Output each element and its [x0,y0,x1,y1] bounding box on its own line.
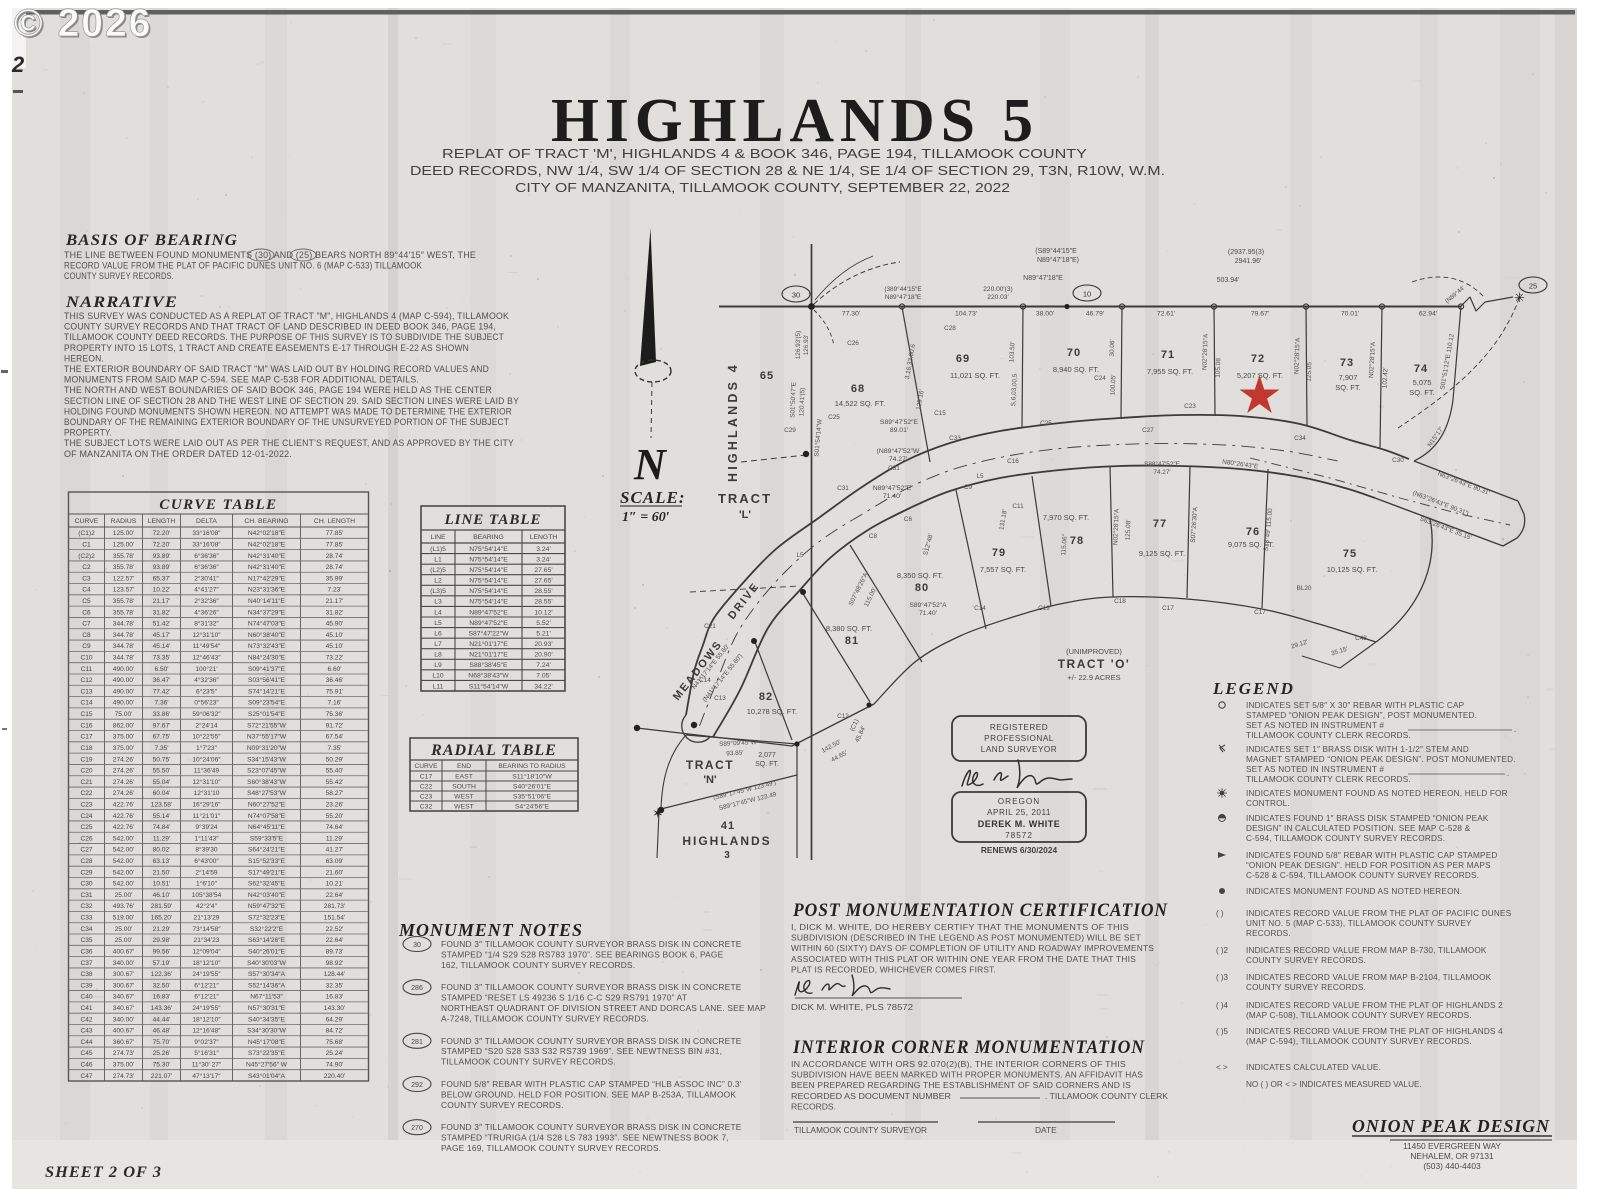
svg-text:30.06′: 30.06′ [1109,338,1117,356]
svg-text:S09°23′54″E: S09°23′54″E [248,699,286,707]
svg-text:69: 69 [956,353,970,365]
svg-text:82: 82 [759,691,773,703]
svg-text:490.00': 490.00' [113,688,134,695]
svg-text:36.46': 36.46' [326,677,344,684]
svg-text:OF MANZANITA ON THE ORDER DATE: OF MANZANITA ON THE ORDER DATED 12-01-20… [64,449,292,459]
svg-text:S4°24′56″E: S4°24′56″E [515,803,550,811]
svg-text:C26: C26 [80,835,92,842]
svg-text:SET AS NOTED IN INSTRUMENT #: SET AS NOTED IN INSTRUMENT # [1246,721,1384,730]
svg-text:7,907: 7,907 [1339,373,1358,382]
svg-text:N60°38′40″E: N60°38′40″E [248,631,286,639]
svg-text:6°12′21″: 6°12′21″ [194,993,219,1001]
svg-text:62.94': 62.94' [1419,311,1437,318]
svg-text:16°29′16″: 16°29′16″ [192,800,221,808]
svg-text:10: 10 [1083,290,1091,299]
svg-text:16.83': 16.83' [326,994,344,1001]
svg-text:DEED RECORDS, NW 1/4, SW 1/4 O: DEED RECORDS, NW 1/4, SW 1/4 OF SECTION … [410,164,1165,178]
svg-text:S89°47′52″E: S89°47′52″E [880,418,919,426]
svg-text:55.50': 55.50' [153,768,171,775]
svg-text:.: . [1507,769,1509,778]
svg-text:MONUMENT NOTES: MONUMENT NOTES [398,920,583,940]
svg-text:THE LINE BETWEEN FOUND MONUMEN: THE LINE BETWEEN FOUND MONUMENTS (30) AN… [64,250,476,260]
svg-text:28.74': 28.74' [326,564,344,571]
svg-text:21.17': 21.17' [326,598,344,605]
svg-text:'L': 'L' [739,509,751,521]
svg-text:46.48': 46.48' [153,1028,171,1035]
svg-text:C17: C17 [80,734,92,741]
svg-text:70: 70 [1067,347,1081,359]
svg-text:(L3)5: (L3)5 [430,588,446,595]
svg-text:1°11′43″: 1°11′43″ [194,834,219,842]
svg-text:STAMPED “1/4 S29 S28 RS783 197: STAMPED “1/4 S29 S28 RS783 1970”. SEE BE… [441,949,724,959]
svg-text:2°32′36″: 2°32′36″ [194,597,219,605]
svg-text:L7: L7 [434,641,442,648]
svg-text:73.22': 73.22' [326,655,344,662]
svg-text:71.40′: 71.40′ [883,493,902,500]
svg-text:INTERIOR CORNER MONUMENTATION: INTERIOR CORNER MONUMENTATION [792,1037,1145,1058]
svg-text:542.00': 542.00' [113,869,134,876]
svg-text:S52°14′36″A: S52°14′36″A [248,981,286,989]
svg-text:BL20: BL20 [1297,585,1312,592]
svg-text:N02°28′15″A: N02°28′15″A [1111,508,1120,545]
svg-text:(S89°44′15″E: (S89°44′15″E [1035,247,1077,255]
svg-text:0°56′23″: 0°56′23″ [194,699,219,707]
svg-text:71.40′: 71.40′ [919,610,938,617]
svg-text:ASSOCIATED WITH THIS PLAT OR W: ASSOCIATED WITH THIS PLAT OR WITHIN ONE … [791,954,1136,964]
svg-text:18°12′10″: 18°12′10″ [192,959,221,967]
svg-text:21°34′23: 21°34′23 [194,936,220,944]
svg-text:32.35': 32.35' [326,982,344,989]
svg-text:5.21': 5.21' [536,630,551,637]
svg-text:73: 73 [1340,357,1354,369]
svg-text:503.94′: 503.94′ [1217,277,1240,284]
svg-text:68: 68 [851,383,865,395]
svg-text:490.00': 490.00' [113,666,134,673]
svg-text:125.05: 125.05 [1306,362,1314,382]
svg-text:NO ( ) OR < > INDICATES MEASUR: NO ( ) OR < > INDICATES MEASURED VALUE. [1246,1080,1422,1089]
svg-text:C16: C16 [80,722,92,729]
svg-text:INDICATES CALCULATED VALUE.: INDICATES CALCULATED VALUE. [1246,1063,1381,1072]
svg-text:S34°30′30″W: S34°30′30″W [247,1027,287,1035]
svg-text:6°43′00″: 6°43′00″ [194,857,219,865]
svg-text:C26: C26 [847,340,859,347]
svg-text:C38: C38 [80,971,92,978]
svg-text:FOUND 3″ TILLAMOOK COUNTY SURV: FOUND 3″ TILLAMOOK COUNTY SURVEYOR BRASS… [441,982,742,992]
svg-text:C27: C27 [80,847,92,854]
svg-text:123.58': 123.58' [151,801,172,808]
svg-text:105°38′54: 105°38′54 [192,891,222,899]
svg-text:INDICATES RECORD VALUE FROM MA: INDICATES RECORD VALUE FROM MAP B-730, T… [1246,946,1487,955]
svg-text:400.67': 400.67' [113,1028,134,1035]
svg-text:46.79': 46.79' [1086,311,1104,318]
svg-text:SCALE:: SCALE: [620,488,686,507]
svg-text:103.50′: 103.50′ [1008,341,1016,363]
svg-text:4°36′26″: 4°36′26″ [194,608,219,616]
svg-text:46.10': 46.10' [153,892,171,899]
svg-text:THE SUBJECT LOTS WERE LAID OUT: THE SUBJECT LOTS WERE LAID OUT AS PER TH… [64,438,514,448]
svg-text:STAMPED “S20 S28 S33 S32 RS739: STAMPED “S20 S28 S33 S32 RS739 1969”. SE… [441,1046,722,1056]
svg-text:422.76': 422.76' [113,824,134,831]
svg-text:542.00': 542.00' [113,847,134,854]
svg-text:S40°26′01″E: S40°26′01″E [513,783,552,791]
svg-text:END: END [457,763,471,770]
svg-text:22.64': 22.64' [326,937,344,944]
svg-text:C21: C21 [80,779,92,786]
svg-text:542.00': 542.00' [113,835,134,842]
svg-text:3.24': 3.24' [536,546,551,553]
svg-text:32.50': 32.50' [153,982,171,989]
svg-text:34.22': 34.22' [534,683,552,690]
svg-text:INDICATES RECORD VALUE FROM TH: INDICATES RECORD VALUE FROM THE PLAT OF … [1246,1001,1503,1010]
svg-text:25.00': 25.00' [115,892,133,899]
svg-text:C35: C35 [80,937,92,944]
svg-text:TILLAMOOK COUNTY CLERK RECORDS: TILLAMOOK COUNTY CLERK RECORDS. [1246,775,1411,784]
svg-text:C1: C1 [82,541,91,548]
svg-text:PAGE 169, TILLAMOOK COUNTY SUR: PAGE 169, TILLAMOOK COUNTY SURVEY RECORD… [441,1143,661,1153]
svg-text:47°13′17″: 47°13′17″ [192,1072,221,1080]
svg-text:C12: C12 [80,677,92,684]
svg-text:UNIT NO. 5 (MAP C-533), TILLAM: UNIT NO. 5 (MAP C-533), TILLAMOOK COUNTY… [1246,919,1472,928]
svg-text:30: 30 [792,291,800,300]
svg-text:S25°01′54″E: S25°01′54″E [248,710,286,718]
svg-text:N42°02′18″E: N42°02′18″E [248,540,286,548]
svg-text:C-594, TILLAMOOK COUNTY SURVEY: C-594, TILLAMOOK COUNTY SURVEY RECORDS. [1246,834,1445,843]
svg-text:N75°54′14″E: N75°54′14″E [469,555,508,563]
svg-text:7.23': 7.23' [327,587,341,594]
svg-text:C15: C15 [80,711,92,718]
svg-text:L5: L5 [976,473,984,480]
svg-text:10.22': 10.22' [153,587,171,594]
svg-text:DELTA: DELTA [196,518,217,525]
svg-text:FOUND 5/8″ REBAR WITH PLASTIC: FOUND 5/8″ REBAR WITH PLASTIC CAP STAMPE… [441,1079,742,1089]
svg-text:FOUND 3″ TILLAMOOK COUNTY SURV: FOUND 3″ TILLAMOOK COUNTY SURVEYOR BRASS… [441,1122,742,1132]
svg-text:SQ. FT.: SQ. FT. [1409,388,1434,397]
svg-text:12°31′10″: 12°31′10″ [192,631,221,639]
svg-text:422.76': 422.76' [113,801,134,808]
svg-text:COUNTY SURVEY RECORDS.: COUNTY SURVEY RECORDS. [441,1100,564,1110]
svg-text:25.24': 25.24' [326,1050,344,1057]
svg-text:33°16′08″: 33°16′08″ [192,540,221,548]
svg-text:162, TILLAMOOK COUNTY SURVEY R: 162, TILLAMOOK COUNTY SURVEY RECORDS. [441,960,635,970]
svg-text:LENGTH: LENGTH [530,534,558,541]
svg-text:C24: C24 [1094,375,1106,382]
svg-text:DATE: DATE [1035,1125,1057,1135]
svg-text:INDICATES MONUMENT FOUND AS NO: INDICATES MONUMENT FOUND AS NOTED HEREON… [1246,789,1508,798]
svg-text:L8: L8 [434,652,442,659]
svg-text:S59°33′5″E: S59°33′5″E [250,834,284,842]
svg-text:C24: C24 [80,813,92,820]
svg-text:31.82': 31.82' [153,609,171,616]
svg-text:INDICATES MONUMENT FOUND AS NO: INDICATES MONUMENT FOUND AS NOTED HEREON… [1246,887,1462,896]
svg-text:C19: C19 [80,756,92,763]
svg-text:N40°14′11″E: N40°14′11″E [248,597,285,605]
svg-text:2941.96′: 2941.96′ [1235,258,1262,265]
svg-text:N17°42′29″E: N17°42′29″E [248,574,286,582]
svg-text:S74°14′21″E: S74°14′21″E [248,687,286,695]
svg-text:N60°27′52″E: N60°27′52″E [248,800,286,808]
svg-text:270: 270 [411,1125,423,1132]
svg-text:274.26': 274.26' [113,756,134,763]
svg-text:6.60': 6.60' [327,666,341,673]
svg-text:(N89°47′52″W: (N89°47′52″W [877,447,920,455]
svg-text:143.36': 143.36' [151,1005,172,1012]
svg-text:11450 EVERGREEN WAY: 11450 EVERGREEN WAY [1403,1141,1501,1151]
svg-text:✶: ✶ [652,805,664,821]
svg-text:C10: C10 [80,655,92,662]
svg-text:36.47': 36.47' [153,677,171,684]
svg-text:C23: C23 [420,794,433,801]
svg-text:N21°01′17″E: N21°01′17″E [469,640,508,648]
svg-text:COUNTY SURVEY RECORDS.: COUNTY SURVEY RECORDS. [64,271,174,281]
svg-text:C32: C32 [420,804,433,811]
svg-text:300.67': 300.67' [113,971,134,978]
svg-text:CH. BEARING: CH. BEARING [244,518,288,525]
svg-text:C5: C5 [82,598,91,605]
svg-text:20.90': 20.90' [534,652,552,659]
svg-text:97.67': 97.67' [153,722,171,729]
svg-text:( )3: ( )3 [1216,973,1229,982]
svg-text:74.90': 74.90' [326,1062,344,1069]
svg-text:N37°55′17″W: N37°55′17″W [247,733,287,741]
svg-text:59°06′32″: 59°06′32″ [192,710,221,718]
svg-text:SUBDIVISION (DESCRIBED IN THE: SUBDIVISION (DESCRIBED IN THE LEGEND AS … [791,933,1142,943]
svg-text:2: 2 [11,52,25,77]
svg-text:93.85′: 93.85′ [726,750,744,758]
svg-text:74: 74 [1414,363,1428,375]
svg-text:ONION PEAK DESIGN: ONION PEAK DESIGN [1352,1116,1550,1136]
svg-text:281.59': 281.59' [151,903,172,910]
svg-text:N89°47′18″E): N89°47′18″E) [1037,256,1079,264]
svg-text:N89°47′52″E: N89°47′52″E [873,484,912,492]
svg-text:28.55': 28.55' [534,588,552,595]
svg-text:11°21′01″: 11°21′01″ [193,812,221,820]
svg-text:6°23′5″: 6°23′5″ [196,687,218,695]
svg-text:N73°32′43″E: N73°32′43″E [248,642,286,650]
svg-text:340.00': 340.00' [113,1016,134,1023]
svg-text:BASIS OF BEARING: BASIS OF BEARING [65,232,238,249]
svg-text:11°30′ 27″: 11°30′ 27″ [192,1061,222,1069]
svg-text:L3: L3 [434,599,442,606]
svg-text:490.00': 490.00' [113,677,134,684]
svg-text:L11: L11 [433,683,444,690]
svg-text:28.74': 28.74' [326,553,344,560]
svg-text:N21°01′17″E: N21°01′17″E [469,651,508,659]
svg-text:INDICATES RECORD VALUE FROM TH: INDICATES RECORD VALUE FROM THE PLAT OF … [1246,1027,1503,1036]
svg-text:21.60': 21.60' [326,869,344,876]
svg-text:165.20': 165.20' [151,915,172,922]
svg-text:DEREK M. WHITE: DEREK M. WHITE [978,819,1061,829]
svg-text:126.93′: 126.93′ [803,334,810,356]
svg-text:274.26': 274.26' [113,779,134,786]
svg-text:C41: C41 [80,1005,92,1012]
svg-text:7,970 SQ. FT.: 7,970 SQ. FT. [1043,513,1089,522]
svg-text:221.07': 221.07' [151,1073,172,1080]
svg-text:60.04': 60.04' [153,790,171,797]
svg-text:STAMPED “RESET LS 49236 S 1/16: STAMPED “RESET LS 49236 S 1/16 C-C S29 R… [441,993,687,1003]
svg-text:CONTROL.: CONTROL. [1246,799,1290,808]
svg-text:74.64': 74.64' [326,824,344,831]
svg-text:C17: C17 [1254,609,1266,616]
svg-text:(MAP C-508), TILLAMOOK COUNTY: (MAP C-508), TILLAMOOK COUNTY SURVEY REC… [1246,1011,1472,1020]
svg-text:N02°28′15″A: N02°28′15″A [1292,337,1301,374]
svg-text:91.72': 91.72' [326,722,344,729]
svg-text:C22: C22 [80,790,92,797]
svg-text:45.90': 45.90' [326,621,344,628]
svg-text:REGISTERED: REGISTERED [990,723,1048,732]
svg-text:C32: C32 [80,903,92,910]
svg-text:HIGHLANDS 4: HIGHLANDS 4 [726,362,740,482]
svg-text:C6: C6 [904,516,913,523]
svg-text:S15°52′33″E: S15°52′33″E [248,857,286,865]
svg-text:75.70': 75.70' [153,1039,171,1046]
svg-text:21.17': 21.17' [153,598,171,605]
svg-text:72.61': 72.61' [1157,311,1175,318]
svg-text:C30: C30 [1392,457,1404,464]
svg-text:C28: C28 [80,858,92,865]
svg-text:24°19′55″: 24°19′55″ [192,970,221,978]
svg-text:THE NORTH AND WEST BOUNDARIES: THE NORTH AND WEST BOUNDARIES OF SAID BO… [64,385,492,395]
svg-text:73°14′58″: 73°14′58″ [192,925,221,933]
svg-text:24°19′55″: 24°19′55″ [192,1004,221,1012]
svg-text:L10: L10 [432,673,444,680]
svg-text:862.00': 862.00' [113,722,134,729]
svg-text:80: 80 [915,582,929,594]
svg-text:100.05′: 100.05′ [1110,374,1118,396]
svg-text:SHEET 2 OF 3: SHEET 2 OF 3 [45,1164,162,1181]
svg-text:75.30': 75.30' [153,1062,171,1069]
svg-text:APRIL 25, 2011: APRIL 25, 2011 [987,808,1051,817]
svg-text:S57°30′34″A: S57°30′34″A [248,970,286,978]
svg-text:A-7248, TILLAMOOK COUNTY SURVE: A-7248, TILLAMOOK COUNTY SURVEY RECORDS. [441,1013,649,1023]
svg-text:77.85': 77.85' [326,530,344,537]
svg-text:35.99': 35.99' [326,575,344,582]
svg-text:L2: L2 [434,578,442,585]
svg-text:375.00': 375.00' [113,745,134,752]
svg-text:(2937.95(3): (2937.95(3) [1228,249,1264,256]
svg-text:C23: C23 [80,801,92,808]
svg-text:OREGON: OREGON [998,797,1040,806]
svg-text:C19: C19 [1038,605,1050,612]
svg-text:1°7′23″: 1°7′23″ [196,744,218,752]
svg-text:N89°47′52″E: N89°47′52″E [469,608,508,616]
svg-text:72: 72 [1251,353,1265,365]
svg-text:77.85': 77.85' [326,541,344,548]
svg-text:C25: C25 [1040,420,1052,427]
svg-text:DICK M. WHITE, PLS 78572: DICK M. WHITE, PLS 78572 [791,1002,913,1012]
svg-text:(UNIMPROVED): (UNIMPROVED) [1066,647,1122,656]
svg-text:WEST: WEST [454,794,474,801]
svg-text:RADIAL TABLE: RADIAL TABLE [430,742,557,759]
svg-text:C36: C36 [80,948,92,955]
svg-text:75.91': 75.91' [326,688,344,695]
svg-text:55.40': 55.40' [326,768,344,775]
svg-text:6°36′36″: 6°36′36″ [194,563,219,571]
svg-text:TILLAMOOK COUNTY DEED RECORDS.: TILLAMOOK COUNTY DEED RECORDS. THE PURPO… [64,332,504,342]
svg-text:C22: C22 [420,784,433,791]
svg-text:27.65': 27.65' [534,578,552,585]
svg-text:S34°15′43″W: S34°15′43″W [247,755,287,763]
svg-text:N: N [633,440,668,489]
svg-text:C17: C17 [1162,605,1174,612]
svg-text:70.01': 70.01' [1341,311,1359,318]
svg-text:C18: C18 [1114,598,1126,605]
svg-text:C8: C8 [869,533,878,540]
svg-text:12°16′48″: 12°16′48″ [192,1027,221,1035]
svg-text:S43°01′04″A: S43°01′04″A [248,1072,286,1080]
svg-text:CITY OF MANZANITA, TILLAMOOK C: CITY OF MANZANITA, TILLAMOOK COUNTY, SEP… [515,181,1010,195]
svg-text:S40°26′01″E: S40°26′01″E [248,947,286,955]
svg-text:RECORDED AS DOCUMENT NUMBER: RECORDED AS DOCUMENT NUMBER [791,1091,951,1101]
svg-text:WITHIN 60 (SIXTY) DAYS OF COMP: WITHIN 60 (SIXTY) DAYS OF COMPLETION OF … [791,943,1154,953]
svg-text:10,125 SQ. FT.: 10,125 SQ. FT. [1327,565,1377,574]
svg-text:63.09': 63.09' [326,858,344,865]
svg-text:N57°30′31″E: N57°30′31″E [248,1004,286,1012]
svg-text:2°30′41″: 2°30′41″ [194,574,219,582]
svg-text:274.26': 274.26' [113,768,134,775]
svg-text:NARRATIVE: NARRATIVE [65,294,178,311]
svg-text:FOUND 3″ TILLAMOOK COUNTY SURV: FOUND 3″ TILLAMOOK COUNTY SURVEYOR BRASS… [441,1036,742,1046]
svg-text:344.78': 344.78' [113,632,134,639]
svg-text:STAMPED “ONION PEAK DESIGN”, P: STAMPED “ONION PEAK DESIGN”, POST MONUME… [1246,711,1477,720]
svg-text:+/- 22.9 ACRES: +/- 22.9 ACRES [1067,673,1120,682]
svg-text:89.01′: 89.01′ [890,427,909,434]
svg-text:N89°47′18″E: N89°47′18″E [1023,274,1063,282]
svg-text:TRACT 'O': TRACT 'O' [1058,657,1131,671]
svg-text:C45: C45 [80,1050,92,1057]
svg-text:7.05': 7.05' [536,673,551,680]
svg-text:N84°24′30″E: N84°24′30″E [248,654,286,662]
svg-text:IN ACCORDANCE WITH ORS 92.070(: IN ACCORDANCE WITH ORS 92.070(2)(B), THE… [791,1059,1126,1069]
svg-text:2°24′14: 2°24′14 [195,721,218,729]
svg-text:N02°28′15″A: N02°28′15″A [1200,333,1209,370]
svg-text:BEARING: BEARING [473,534,504,541]
svg-text:( )5: ( )5 [1216,1027,1229,1036]
svg-text:151.54': 151.54' [324,915,345,922]
svg-text:355.78': 355.78' [113,609,134,616]
svg-text:64.29': 64.29' [326,1016,344,1023]
svg-text:L5: L5 [434,620,442,627]
svg-text:9°39′24: 9°39′24 [195,823,218,831]
svg-text:C33: C33 [80,915,92,922]
svg-text:S11°54′14″W: S11°54′14″W [469,682,509,690]
svg-text:N45°17′08″E: N45°17′08″E [248,1038,286,1046]
svg-text:75: 75 [1343,548,1357,560]
svg-text:81: 81 [845,635,859,647]
svg-text:(389°44′15″E: (389°44′15″E [884,285,921,293]
svg-text:. TILLAMOOK COUNTY CLERK: . TILLAMOOK COUNTY CLERK [1045,1091,1168,1101]
svg-text:9,125 SQ. FT.: 9,125 SQ. FT. [1139,549,1185,558]
svg-text:120.41′(5): 120.41′(5) [799,388,807,417]
svg-text:63.13': 63.13' [153,858,171,865]
svg-text:N75°54′14″E: N75°54′14″E [469,577,508,585]
svg-text:14,522 SQ. FT.: 14,522 SQ. FT. [835,399,885,408]
svg-text:N89°47′18″E: N89°47′18″E [885,293,921,301]
svg-text:S73°22′35″E: S73°22′35″E [248,1049,286,1057]
svg-text:8°31′32″: 8°31′32″ [194,620,219,628]
svg-text:“ONION PEAK DESIGN”. HELD FOR: “ONION PEAK DESIGN”. HELD FOR POSITION A… [1246,861,1491,870]
svg-text:8,350 SQ. FT.: 8,350 SQ. FT. [897,571,943,580]
svg-text:125.08′: 125.08′ [1125,519,1133,541]
svg-text:84.72': 84.72' [326,1028,344,1035]
svg-text:220.00′(3): 220.00′(3) [983,286,1012,293]
svg-text:292: 292 [411,1082,423,1089]
svg-text:SECTION LINE OF SECTION 28 AND: SECTION LINE OF SECTION 28 AND THE WEST … [64,396,519,406]
svg-text:74.84': 74.84' [153,824,171,831]
svg-text:C18: C18 [80,745,92,752]
svg-text:6°36′36″: 6°36′36″ [194,552,219,560]
svg-text:6.50': 6.50' [154,666,168,673]
svg-text:25.00': 25.00' [115,937,133,944]
